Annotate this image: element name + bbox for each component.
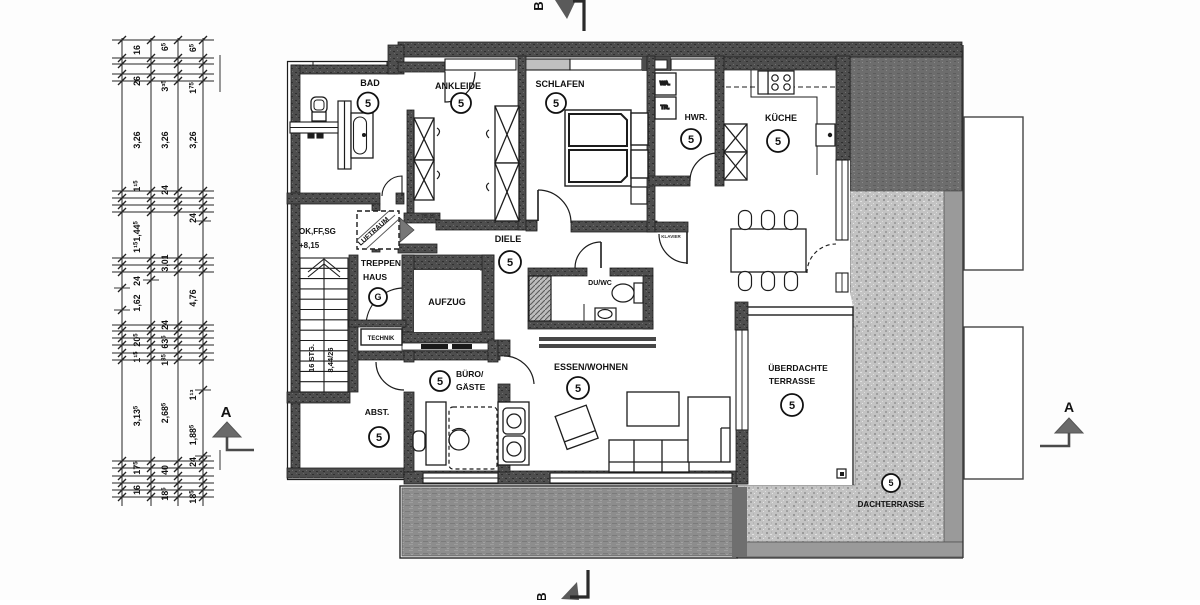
svg-text:HWR.: HWR. xyxy=(685,112,708,122)
svg-text:TERRASSE: TERRASSE xyxy=(769,376,816,386)
svg-text:DU/WC: DU/WC xyxy=(588,280,612,287)
svg-text:16: 16 xyxy=(132,485,142,495)
svg-text:3,01: 3,01 xyxy=(160,254,170,271)
svg-text:24: 24 xyxy=(160,185,170,195)
svg-text:ABST.: ABST. xyxy=(365,407,390,417)
svg-text:BAD: BAD xyxy=(360,78,380,88)
svg-text:5: 5 xyxy=(437,376,443,388)
svg-text:DIELE: DIELE xyxy=(495,234,522,244)
svg-text:5: 5 xyxy=(575,383,581,395)
svg-text:5: 5 xyxy=(458,98,464,110)
svg-text:A: A xyxy=(221,404,232,421)
svg-text:BÜRO/: BÜRO/ xyxy=(456,369,484,379)
svg-text:ÜBERDACHTE: ÜBERDACHTE xyxy=(768,363,828,373)
svg-text:ANKLEIDE: ANKLEIDE xyxy=(435,81,481,91)
svg-text:WA.: WA. xyxy=(660,81,671,87)
svg-text:5: 5 xyxy=(507,257,513,269)
svg-text:26: 26 xyxy=(132,76,142,86)
svg-text:B: B xyxy=(531,1,546,10)
svg-text:8,44/26: 8,44/26 xyxy=(326,347,335,372)
svg-text:5: 5 xyxy=(688,134,694,146)
svg-text:3,26: 3,26 xyxy=(188,131,198,148)
svg-text:16: 16 xyxy=(132,45,142,55)
svg-text:B: B xyxy=(534,592,549,600)
svg-text:5: 5 xyxy=(789,400,795,412)
svg-text:5: 5 xyxy=(553,98,559,110)
svg-text:3,26: 3,26 xyxy=(160,131,170,148)
svg-text:5: 5 xyxy=(376,432,382,444)
svg-text:4,76: 4,76 xyxy=(188,289,198,306)
svg-text:1¹³: 1¹³ xyxy=(188,390,198,401)
svg-text:OK,FF,SG: OK,FF,SG xyxy=(299,227,336,236)
svg-text:ESSEN/WOHNEN: ESSEN/WOHNEN xyxy=(554,362,628,372)
svg-text:SCHLAFEN: SCHLAFEN xyxy=(536,79,585,89)
svg-text:24: 24 xyxy=(188,457,198,467)
svg-text:HAUS: HAUS xyxy=(363,272,387,282)
svg-text:A: A xyxy=(1064,399,1074,415)
svg-text:TB 15: TB 15 xyxy=(421,214,435,220)
svg-text:5: 5 xyxy=(888,478,893,488)
svg-text:KLAVIER: KLAVIER xyxy=(661,234,681,239)
svg-text:5: 5 xyxy=(775,136,781,148)
svg-text:AUFZUG: AUFZUG xyxy=(428,297,466,307)
svg-text:5: 5 xyxy=(365,98,371,110)
svg-text:1¹51,445: 1¹51,445 xyxy=(132,221,142,253)
svg-text:TR.: TR. xyxy=(661,105,670,111)
svg-text:+8,15: +8,15 xyxy=(299,241,320,250)
svg-text:TECHNIK: TECHNIK xyxy=(368,336,395,342)
svg-text:DACHTERRASSE: DACHTERRASSE xyxy=(858,500,925,509)
svg-text:1,62: 1,62 xyxy=(132,294,142,311)
svg-text:16 STG.: 16 STG. xyxy=(307,344,316,372)
svg-text:GÄSTE: GÄSTE xyxy=(456,382,486,392)
svg-text:24: 24 xyxy=(160,320,170,330)
svg-text:40: 40 xyxy=(160,465,170,475)
svg-text:24: 24 xyxy=(132,276,142,286)
svg-text:TREPPEN: TREPPEN xyxy=(361,258,401,268)
svg-text:24: 24 xyxy=(188,213,198,223)
svg-text:G: G xyxy=(374,292,381,302)
svg-text:KÜCHE: KÜCHE xyxy=(765,113,797,123)
svg-text:3,26: 3,26 xyxy=(132,131,142,148)
